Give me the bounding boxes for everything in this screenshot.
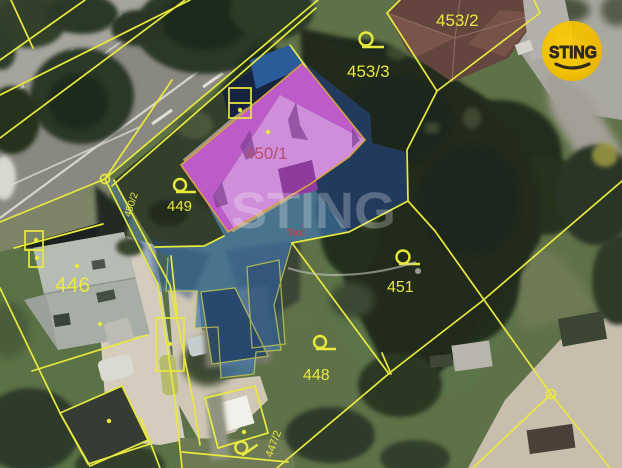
svg-text:453/2: 453/2	[436, 11, 479, 30]
svg-text:449: 449	[167, 198, 192, 215]
svg-text:451: 451	[387, 279, 414, 296]
svg-text:453/3: 453/3	[347, 62, 390, 81]
svg-text:446: 446	[55, 274, 90, 297]
svg-text:448: 448	[303, 367, 330, 384]
svg-text:STING: STING	[231, 182, 396, 239]
svg-text:450/1: 450/1	[245, 144, 288, 163]
svg-text:STING: STING	[549, 42, 597, 62]
